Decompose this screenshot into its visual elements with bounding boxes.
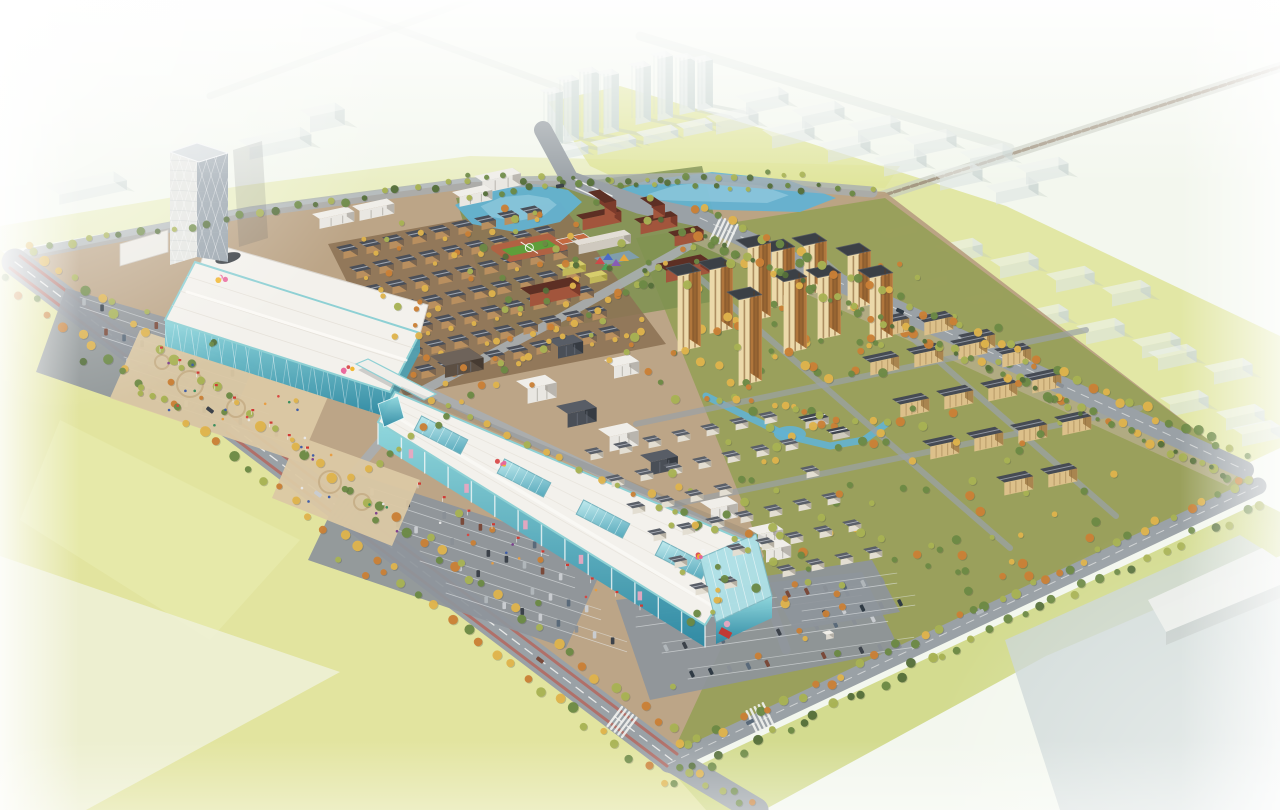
aerial-masterplan-rendering	[0, 0, 1280, 810]
aerial-rendering-stage	[0, 0, 1280, 810]
